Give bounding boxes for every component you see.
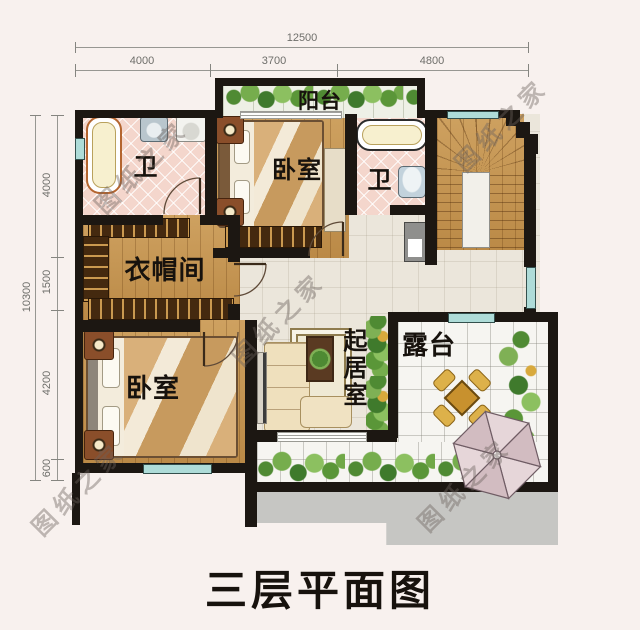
living-room-label: 起居室 bbox=[338, 326, 366, 410]
dimension-label: 3700 bbox=[239, 55, 309, 67]
tv-cabinet bbox=[257, 352, 267, 424]
toilet bbox=[398, 166, 426, 198]
dimension-tick bbox=[337, 64, 338, 77]
bedroom-top-label: 卧室 bbox=[258, 158, 336, 184]
window bbox=[143, 464, 212, 474]
wall-segment bbox=[548, 312, 558, 492]
hall-washbasin-cabinet bbox=[404, 222, 426, 262]
dimension-tick bbox=[75, 64, 76, 77]
wall-segment bbox=[417, 78, 425, 118]
dimension-tick bbox=[528, 42, 529, 53]
living-plant-column bbox=[366, 316, 390, 434]
wall-segment bbox=[75, 110, 215, 118]
dimension-line bbox=[35, 115, 36, 480]
floorplan-page: { "title": "三层平面图", "watermark": { "text… bbox=[0, 0, 640, 630]
bath-right-label: 卫 bbox=[364, 168, 396, 194]
stairs-divider bbox=[462, 172, 490, 248]
dimension-tick bbox=[51, 115, 64, 116]
stairs-treads bbox=[490, 172, 524, 248]
nightstand bbox=[216, 116, 244, 144]
wall-segment bbox=[425, 114, 437, 265]
dimension-label-total-height: 10300 bbox=[21, 262, 33, 332]
page-title: 三层平面图 bbox=[0, 565, 640, 617]
stairs-treads bbox=[437, 172, 462, 248]
wall-segment bbox=[215, 78, 425, 86]
wall-segment bbox=[205, 114, 217, 215]
dimension-line bbox=[75, 70, 528, 71]
wall-segment bbox=[524, 148, 536, 267]
wall-segment bbox=[390, 205, 430, 215]
dimension-tick bbox=[30, 480, 41, 481]
nightstand bbox=[84, 330, 114, 360]
balcony-label: 阳台 bbox=[255, 88, 385, 114]
window bbox=[448, 313, 495, 323]
terrace-label: 露台 bbox=[398, 330, 460, 360]
window bbox=[526, 267, 536, 309]
wall-segment bbox=[75, 110, 83, 473]
living-window-sill bbox=[277, 432, 367, 442]
window bbox=[75, 138, 85, 160]
dimension-label: 4800 bbox=[397, 55, 467, 67]
dimension-line bbox=[75, 47, 528, 48]
bathtub-basin bbox=[362, 125, 422, 145]
dimension-tick bbox=[75, 42, 76, 53]
dimension-tick bbox=[210, 64, 211, 77]
dimension-label: 1500 bbox=[41, 252, 53, 312]
wall-segment bbox=[83, 320, 200, 332]
wall-segment bbox=[228, 215, 240, 262]
dimension-line bbox=[57, 115, 58, 480]
bedroom-bottom-label: 卧室 bbox=[112, 374, 194, 402]
dimension-label: 4000 bbox=[107, 55, 177, 67]
wall-segment bbox=[83, 215, 163, 225]
terrace-bottom-plants bbox=[255, 448, 467, 486]
wall-segment bbox=[228, 304, 240, 320]
wardrobe bbox=[88, 298, 234, 320]
dimension-label-total-width: 12500 bbox=[257, 32, 347, 44]
wall-segment bbox=[388, 312, 398, 438]
wardrobe bbox=[83, 236, 109, 302]
bathtub bbox=[356, 119, 428, 151]
dimension-label: 4200 bbox=[41, 353, 53, 413]
coffee-table bbox=[306, 336, 334, 382]
closet-label: 衣帽间 bbox=[110, 256, 220, 284]
wall-segment bbox=[345, 114, 357, 215]
dimension-tick bbox=[30, 115, 41, 116]
dimension-label: 4000 bbox=[41, 155, 53, 215]
